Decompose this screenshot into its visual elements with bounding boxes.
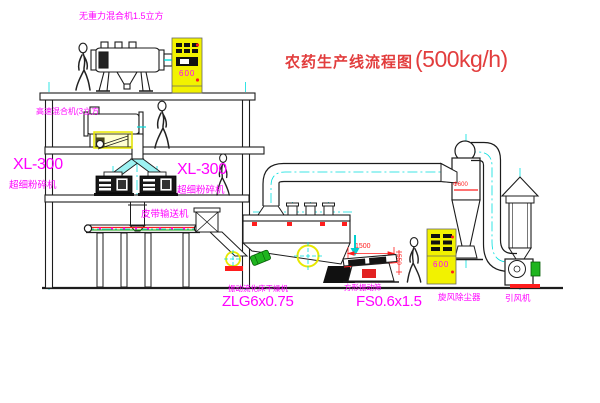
dimension-sieve-height: 550 [395,254,402,265]
label-sieve-model: FS0.6x1.5 [356,294,422,309]
dryer-exhaust-duct [263,164,457,207]
worker-figure-4 [407,238,420,282]
pesticide-line-flow-diagram: 农药生产线流程图 (500kg/h) 无重力混合机1.5立方 高速混合机(3立方… [0,0,600,403]
label-gravity-free-mixer: 无重力混合机1.5立方 [79,12,164,21]
label-belt-conveyor: 皮带输送机 [141,210,189,220]
worker-figure-1 [76,43,90,90]
label-mill-model-right: XL-300 [177,162,227,178]
label-mill-model-left: XL-300 [13,157,63,173]
label-cyclone: 旋风除尘器 [438,293,481,302]
dimension-cyclone-diameter: Φ600 [453,182,468,188]
feeder [194,208,247,271]
indicator-light-icon [196,78,199,81]
label-pulverizer-right: 超细粉碎机 [177,186,225,196]
diagram-title: 农药生产线流程图 (500kg/h) [285,46,508,73]
cabinet-b-text: 600 [433,261,449,269]
worker-figure-2 [155,101,169,148]
label-fan: 引风机 [505,294,531,303]
dimension-sieve-length: 1500 [355,243,371,250]
fluid-bed-dryer [243,203,355,283]
cabinet-a-text: 600 [179,70,195,78]
label-pulverizer-left: 超细粉碎机 [9,181,57,191]
fan-motor [531,262,540,276]
indicator-light-icon [451,271,454,274]
vibrating-sieve [343,235,402,282]
label-dryer: 振动流化床干燥机 [228,285,288,293]
title-capacity: (500kg/h) [415,46,508,73]
indicator-light-icon [451,236,454,239]
pulverizer-right [138,176,178,196]
indicator-light-icon [196,43,199,46]
control-cabinet-a [172,38,202,93]
exhaust-stack [502,177,538,259]
control-cabinet-b [427,229,456,284]
discharge-valve [250,250,271,266]
pulverizer-left [94,176,134,196]
label-sieve: 方形振动筛 [344,284,382,292]
gravity-free-mixer [91,42,172,91]
title-text: 农药生产线流程图 [285,51,413,72]
label-dryer-model: ZLG6x0.75 [222,294,294,309]
label-high-speed-mixer: 高速混合机(3立方 [36,108,99,116]
belt-conveyor [84,225,201,287]
induced-draft-fan [505,259,540,288]
